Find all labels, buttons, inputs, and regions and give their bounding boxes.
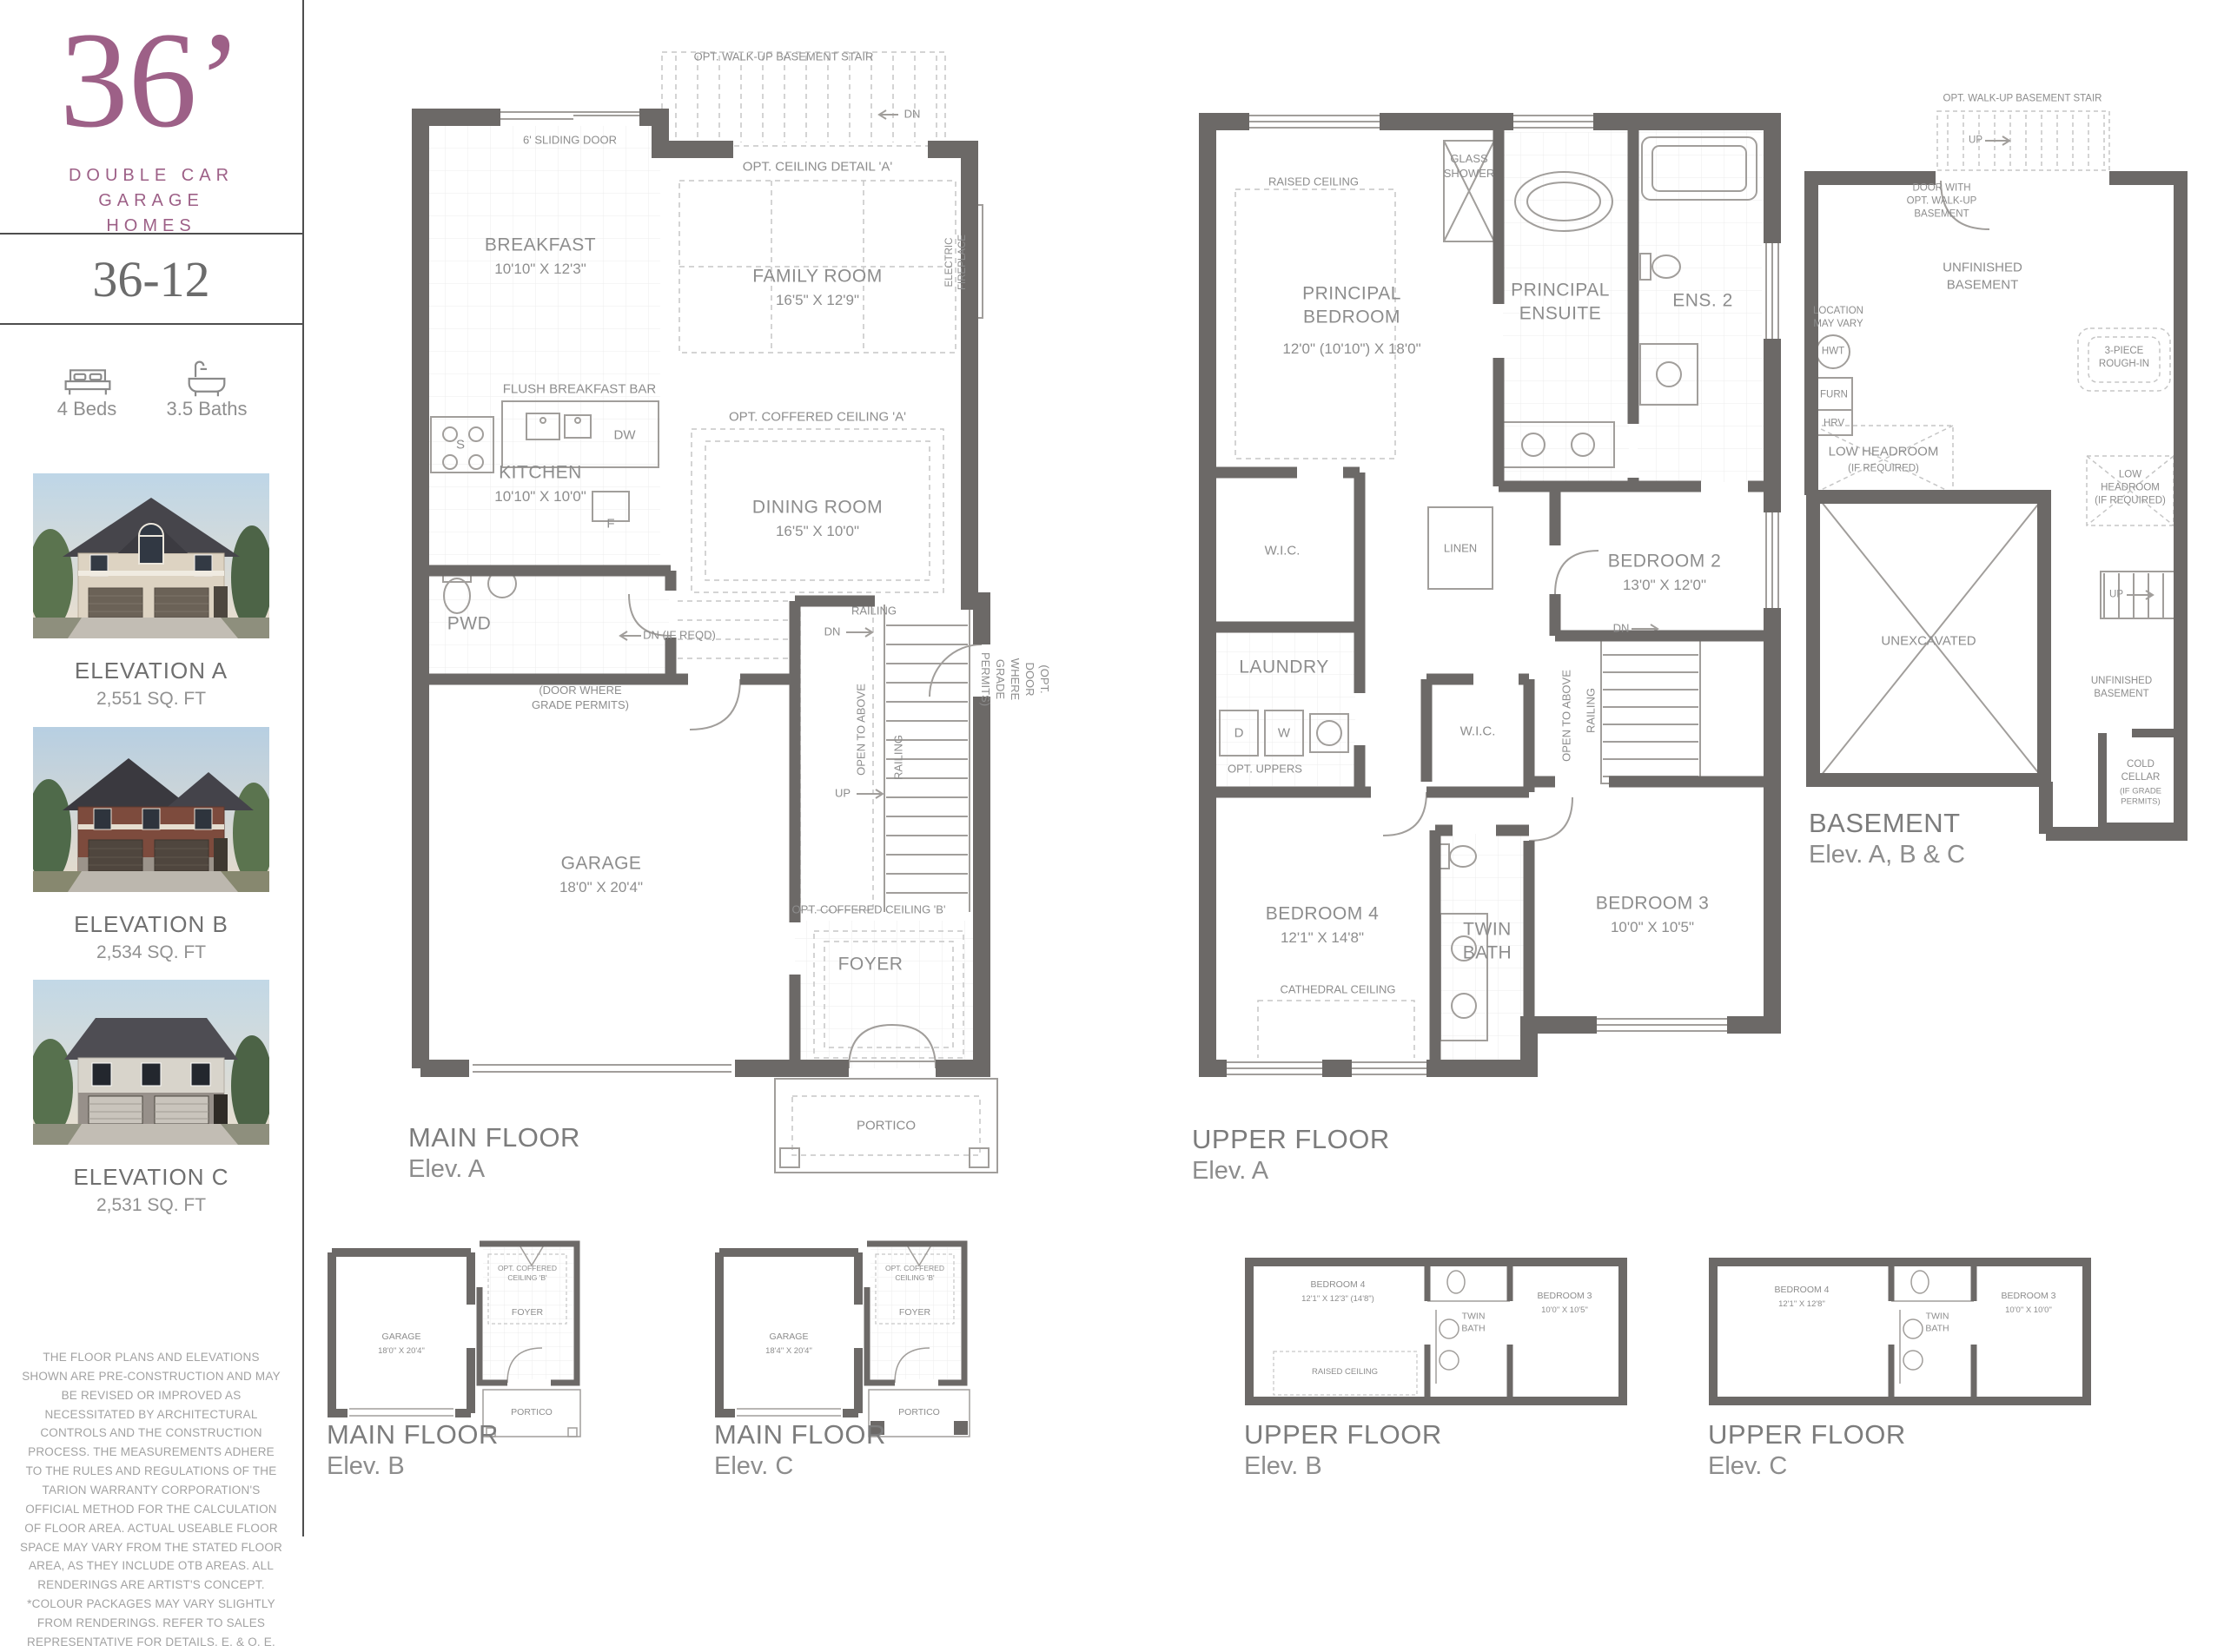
main-floor-plan-elev-c: GARAGE 18'4" X 20'4" OPT. COFFERED CEILI… bbox=[711, 1235, 997, 1444]
room-dim-bedroom4: 12'1" X 12'3" (14'8") bbox=[1301, 1294, 1374, 1305]
room-dim-breakfast: 10'10" X 12'3" bbox=[494, 260, 586, 279]
room-label-portico: PORTICO bbox=[857, 1117, 916, 1134]
elevation-b-name: ELEVATION B bbox=[0, 911, 302, 938]
elevation-a-sqft: 2,551 SQ. FT bbox=[0, 689, 302, 710]
main-floor-plan-elev-b: GARAGE 18'0" X 20'4" OPT. COFFERED CEILI… bbox=[323, 1235, 601, 1444]
upper-floor-a-elev: Elev. A bbox=[1192, 1157, 1268, 1186]
elevation-a-name: ELEVATION A bbox=[0, 657, 302, 684]
label-rough-in: 3-PIECE ROUGH-IN bbox=[2099, 345, 2149, 371]
room-label-unfinished-basement: UNFINISHED BASEMENT bbox=[1943, 260, 2022, 294]
label-coffered-b: OPT. COFFERED CEILING 'B' bbox=[491, 1264, 565, 1283]
upper-floor-b-title: UPPER FLOOR bbox=[1244, 1419, 1442, 1450]
room-label-bedroom4: BEDROOM 4 bbox=[1310, 1279, 1365, 1292]
label-dw: DW bbox=[614, 426, 636, 444]
room-dim-garage: 18'0" X 20'4" bbox=[559, 878, 643, 897]
room-label-principal-bedroom: PRINCIPAL BEDROOM bbox=[1302, 282, 1401, 330]
label-up: UP bbox=[835, 787, 851, 802]
main-floor-a-elev: Elev. A bbox=[408, 1155, 485, 1184]
room-label-kitchen: KITCHEN bbox=[499, 460, 582, 484]
divider bbox=[0, 323, 302, 325]
room-label-linen: LINEN bbox=[1444, 542, 1477, 557]
label-door-grade: (DOOR WHERE GRADE PERMITS) bbox=[532, 684, 629, 713]
label-stove: S bbox=[456, 436, 465, 453]
basement-title: BASEMENT bbox=[1809, 808, 1961, 839]
main-floor-plan-elev-a: OPT. WALK-UP BASEMENT STAIR DN 6' SLIDIN… bbox=[400, 35, 1042, 1190]
divider bbox=[0, 233, 302, 235]
room-label-bedroom4: BEDROOM 4 bbox=[1774, 1285, 1829, 1297]
room-label-laundry: LAUNDRY bbox=[1239, 655, 1328, 678]
upper-floor-c-elev: Elev. C bbox=[1708, 1452, 1787, 1481]
logo-subtitle: DOUBLE CAR GARAGE HOMES bbox=[0, 163, 302, 239]
room-label-family: FAMILY ROOM bbox=[752, 264, 882, 287]
upper-floor-plan-elev-c: BEDROOM 4 12'1" X 12'8" TWIN BATH BEDROO… bbox=[1704, 1249, 2095, 1414]
label-ceiling-detail-a: OPT. CEILING DETAIL 'A' bbox=[743, 158, 892, 175]
main-floor-a-title: MAIN FLOOR bbox=[408, 1122, 580, 1153]
label-dn: DN bbox=[1613, 622, 1630, 637]
room-label-pwd: PWD bbox=[447, 611, 492, 635]
label-hrv: HRV bbox=[1824, 418, 1844, 431]
baths-count: 3.5 Baths bbox=[146, 398, 268, 420]
upper-floor-c-title: UPPER FLOOR bbox=[1708, 1419, 1906, 1450]
main-floor-c-title: MAIN FLOOR bbox=[714, 1419, 886, 1450]
room-label-bedroom3: BEDROOM 3 bbox=[1596, 891, 1710, 915]
elevation-a-rendering bbox=[33, 473, 269, 638]
label-door-with-walkup: DOOR WITH OPT. WALK-UP BASEMENT bbox=[1907, 182, 1977, 221]
room-label-garage: GARAGE bbox=[561, 851, 642, 875]
label-low-headroom-left-sub: (IF REQUIRED) bbox=[1848, 463, 1919, 476]
room-label-ens2: ENS. 2 bbox=[1672, 288, 1733, 312]
elevation-c-rendering bbox=[33, 980, 269, 1145]
room-label-foyer: FOYER bbox=[899, 1307, 930, 1319]
room-label-garage: GARAGE bbox=[770, 1332, 809, 1344]
room-label-foyer: FOYER bbox=[512, 1307, 543, 1319]
elevation-c-sqft: 2,531 SQ. FT bbox=[0, 1195, 302, 1216]
label-hwt: HWT bbox=[1822, 346, 1844, 359]
upper-floor-b-elev: Elev. B bbox=[1244, 1452, 1322, 1481]
label-washer: W bbox=[1278, 724, 1290, 742]
room-label-bedroom4: BEDROOM 4 bbox=[1266, 902, 1380, 925]
label-low-headroom-left: LOW HEADROOM bbox=[1829, 443, 1939, 460]
room-label-bedroom2: BEDROOM 2 bbox=[1608, 549, 1722, 572]
room-dim-dining: 16'5" X 10'0" bbox=[776, 522, 859, 541]
sidebar-divider bbox=[302, 0, 304, 1536]
room-label-wic2: W.I.C. bbox=[1460, 723, 1496, 740]
room-label-twin-bath: TWIN BATH bbox=[1463, 918, 1512, 966]
label-coffered-b: OPT. COFFERED CEILING 'B' bbox=[874, 1264, 956, 1283]
label-open-to-above: OPEN TO ABOVE bbox=[855, 684, 870, 776]
label-dn-if-reqd: DN (IF REQD) bbox=[643, 629, 716, 644]
label-opt-uppers: OPT. UPPERS bbox=[1228, 763, 1302, 777]
logo-36: 36’ bbox=[0, 12, 302, 149]
room-label-principal-ensuite: PRINCIPAL ENSUITE bbox=[1511, 279, 1610, 327]
label-glass-shower: GLASS SHOWER bbox=[1444, 152, 1495, 182]
main-floor-b-elev: Elev. B bbox=[327, 1452, 405, 1481]
label-coffered-a: OPT. COFFERED CEILING 'A' bbox=[729, 408, 906, 426]
room-dim-kitchen: 10'10" X 10'0" bbox=[494, 487, 586, 506]
room-dim-bedroom3: 10'0" X 10'5" bbox=[1611, 918, 1694, 937]
elevation-b-rendering bbox=[33, 727, 269, 892]
main-floor-drawing bbox=[400, 35, 1042, 1190]
label-opt-door-grade: (OPT. DOOR WHERE GRADE PERMITS) bbox=[978, 652, 1051, 706]
label-raised-ceiling: RAISED CEILING bbox=[1268, 175, 1359, 190]
label-raised-ceiling: RAISED CEILING bbox=[1312, 1367, 1378, 1378]
room-label-bedroom3: BEDROOM 3 bbox=[2001, 1291, 2055, 1303]
room-dim-principal-bedroom: 12'0" (10'10") X 18'0" bbox=[1282, 340, 1420, 359]
label-open-to-above: OPEN TO ABOVE bbox=[1560, 670, 1575, 762]
label-cathedral-ceiling: CATHEDRAL CEILING bbox=[1281, 983, 1396, 998]
label-up2: UP bbox=[2109, 589, 2123, 602]
room-dim-family: 16'5" X 12'9" bbox=[776, 291, 859, 310]
label-cold-cellar-sub: (IF GRADE PERMITS) bbox=[2099, 787, 2182, 809]
upper-floor-drawing bbox=[1181, 87, 1790, 1216]
model-number: 36-12 bbox=[0, 250, 302, 308]
elevation-b-sqft: 2,534 SQ. FT bbox=[0, 942, 302, 963]
upper-floor-plan-elev-b: BEDROOM 4 12'1" X 12'3" (14'8") RAISED C… bbox=[1241, 1249, 1632, 1414]
upper-floor-plan-elev-a: RAISED CEILING PRINCIPAL BEDROOM 12'0" (… bbox=[1181, 87, 1790, 1216]
room-label-twin-bath: TWIN BATH bbox=[1925, 1311, 1949, 1334]
label-location-may-vary: LOCATION MAY VARY bbox=[1813, 305, 1863, 331]
sidebar: 36’ DOUBLE CAR GARAGE HOMES 36-12 4 Beds… bbox=[0, 0, 302, 1536]
room-dim-bedroom2: 13'0" X 12'0" bbox=[1623, 576, 1706, 595]
basement-plan: OPT. WALK-UP BASEMENT STAIR UP DOOR WITH… bbox=[1798, 87, 2224, 877]
label-dn: DN bbox=[824, 625, 841, 640]
label-dryer: D bbox=[1234, 724, 1244, 742]
label-dn: DN bbox=[904, 108, 921, 122]
room-dim-bedroom3: 10'0" X 10'0" bbox=[2005, 1305, 2052, 1316]
bed-icon bbox=[63, 363, 113, 400]
label-furn: FURN bbox=[1820, 389, 1848, 402]
main-floor-b-title: MAIN FLOOR bbox=[327, 1419, 499, 1450]
label-railing-vertical: RAILING bbox=[892, 735, 907, 780]
upper-floor-a-title: UPPER FLOOR bbox=[1192, 1124, 1390, 1155]
room-label-dining: DINING ROOM bbox=[752, 495, 883, 519]
room-label-portico: PORTICO bbox=[898, 1407, 940, 1419]
room-dim-garage: 18'0" X 20'4" bbox=[378, 1346, 425, 1357]
room-label-foyer: FOYER bbox=[838, 952, 903, 975]
beds-count: 4 Beds bbox=[26, 398, 148, 420]
label-fridge: F bbox=[606, 515, 614, 532]
bathtub-icon bbox=[184, 358, 229, 400]
label-low-headroom-right: LOW HEADROOM (IF REQUIRED) bbox=[2095, 469, 2166, 508]
room-label-bedroom3: BEDROOM 3 bbox=[1537, 1291, 1592, 1303]
room-dim-bedroom4: 12'1" X 14'8" bbox=[1281, 928, 1364, 948]
room-label-breakfast: BREAKFAST bbox=[485, 233, 596, 256]
room-label-cold-cellar: COLD CELLAR bbox=[2121, 758, 2161, 784]
upper-floor-c-drawing bbox=[1704, 1249, 2095, 1414]
label-opt-walkup-stair: OPT. WALK-UP BASEMENT STAIR bbox=[694, 50, 874, 65]
room-dim-bedroom3: 10'0" X 10'5" bbox=[1541, 1305, 1588, 1316]
label-flush-breakfast-bar: FLUSH BREAKFAST BAR bbox=[503, 380, 656, 398]
label-unfinished-basement-2: UNFINISHED BASEMENT bbox=[2091, 675, 2152, 701]
label-railing: RAILING bbox=[1585, 688, 1599, 733]
room-label-garage: GARAGE bbox=[382, 1332, 421, 1344]
room-label-wic: W.I.C. bbox=[1265, 542, 1301, 559]
label-opt-walkup-stair: OPT. WALK-UP BASEMENT STAIR bbox=[1943, 93, 2102, 106]
room-label-twin-bath: TWIN BATH bbox=[1461, 1311, 1485, 1334]
disclaimer-text: THE FLOOR PLANS AND ELEVATIONS SHOWN ARE… bbox=[19, 1348, 283, 1652]
elevation-c-name: ELEVATION C bbox=[0, 1164, 302, 1191]
label-sliding-door: 6' SLIDING DOOR bbox=[523, 134, 617, 149]
basement-elev: Elev. A, B & C bbox=[1809, 841, 1965, 869]
upper-floor-b-drawing bbox=[1241, 1249, 1632, 1414]
main-floor-c-elev: Elev. C bbox=[714, 1452, 793, 1481]
room-label-portico: PORTICO bbox=[511, 1407, 553, 1419]
label-railing: RAILING bbox=[851, 605, 897, 619]
room-dim-garage: 18'4" X 20'4" bbox=[765, 1346, 812, 1357]
room-label-unexcavated: UNEXCAVATED bbox=[1881, 632, 1976, 650]
room-dim-bedroom4: 12'1" X 12'8" bbox=[1778, 1299, 1825, 1310]
label-up: UP bbox=[1969, 135, 1982, 148]
label-electric-fireplace: ELECTRIC FIREPLACE bbox=[943, 220, 970, 306]
label-coffered-b: OPT. COFFERED CEILING 'B' bbox=[792, 903, 946, 918]
